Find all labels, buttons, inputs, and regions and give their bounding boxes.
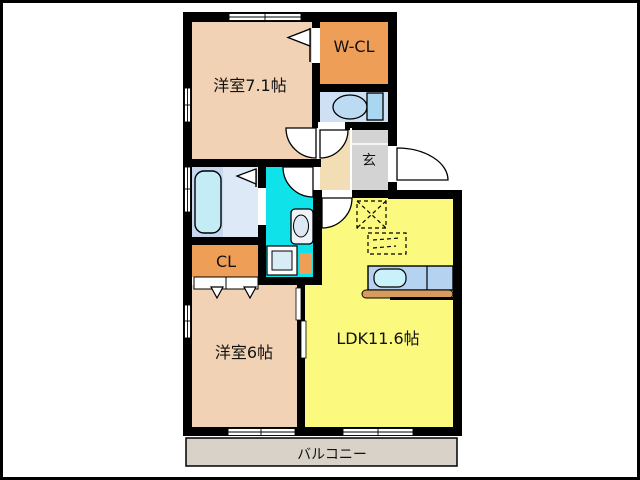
washroom-corner-cabinet: [300, 253, 312, 274]
balcony-label: バルコニー: [297, 447, 367, 463]
sliding-door-pane: [296, 288, 301, 320]
wall-segment: [183, 237, 266, 245]
wall-segment: [388, 12, 397, 146]
window-top: [229, 14, 301, 21]
wall-segment: [183, 12, 192, 436]
washroom-door-opening: [313, 167, 320, 190]
western-room-2-label: 洋室6帖: [215, 343, 273, 362]
western-room-1-label: 洋室7.1帖: [213, 76, 286, 95]
wall-segment: [258, 245, 266, 277]
kitchen-counter-edge: [362, 290, 453, 298]
washbasin-bowl-icon: [294, 215, 309, 237]
kitchen-sink-icon: [374, 269, 406, 287]
floor-plan-image: 洋室7.1帖 W-CL 玄 CL 洋室6帖 LDK11.6帖 バルコニー: [0, 0, 640, 480]
window-left-room1: [185, 88, 191, 122]
wall-segment: [388, 190, 462, 199]
closet-label: CL: [216, 252, 236, 271]
wall-segment: [453, 190, 462, 436]
ldk-floor-lower: [305, 285, 453, 427]
wall-segment: [312, 12, 320, 28]
wall-segment: [312, 63, 320, 128]
entrance-label: 玄: [362, 152, 376, 169]
wall-segment: [312, 84, 388, 92]
walk-in-closet-label: W-CL: [333, 37, 374, 56]
floor-plan-canvas: 洋室7.1帖 W-CL 玄 CL 洋室6帖 LDK11.6帖 バルコニー: [0, 0, 640, 480]
washing-machine-drum-icon: [272, 251, 292, 270]
toilet-door-opening: [318, 122, 345, 130]
wall-segment: [313, 190, 322, 198]
toilet-tank-icon: [367, 93, 383, 120]
bathtub-icon: [195, 171, 221, 233]
wall-segment: [313, 198, 322, 285]
window-left-bathroom: [185, 167, 191, 212]
wall-segment: [183, 159, 321, 167]
wall-segment: [258, 277, 322, 285]
ldk-door-opening: [322, 190, 352, 198]
window-balcony-ldk: [343, 429, 413, 436]
wall-segment: [183, 427, 462, 436]
entry-door-opening: [388, 146, 397, 182]
toilet-icon: [333, 95, 367, 119]
kitchen-counter-base: [390, 297, 453, 300]
bathroom-door-opening: [258, 188, 266, 225]
wcl-door-opening: [312, 28, 320, 63]
window-balcony-room2: [228, 429, 295, 436]
window-left-room2: [185, 305, 191, 338]
ldk-label: LDK11.6帖: [336, 329, 419, 348]
wall-segment: [258, 167, 266, 188]
wall-segment: [352, 190, 388, 198]
sliding-door-pane: [301, 321, 306, 358]
